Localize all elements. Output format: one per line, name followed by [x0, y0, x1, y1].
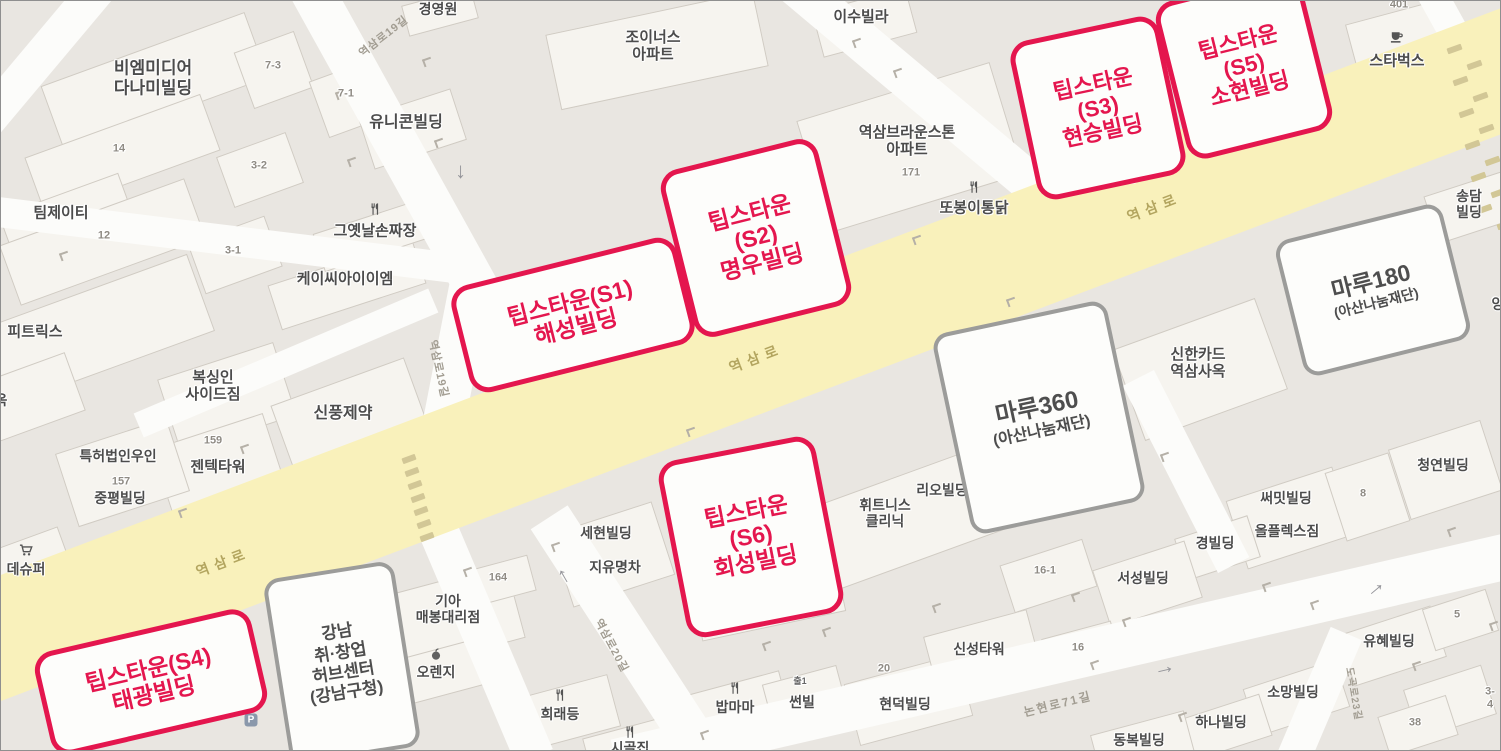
direction-arrow-icon: →	[1151, 654, 1177, 680]
building-label: 이수빌라	[833, 8, 888, 25]
lot-number: 159	[204, 435, 222, 448]
building-label: 시골집	[611, 740, 650, 751]
building-label: 팀제이티	[33, 204, 88, 221]
building-label: 중평빌딩	[94, 490, 146, 506]
lot-number: 20	[878, 663, 890, 676]
coffee-icon	[1390, 31, 1404, 44]
building-label: 출1	[793, 676, 806, 686]
building-label: 경영원	[419, 1, 458, 17]
callout-gangnam-hub: 강남취·창업허브센터(강남구청)	[262, 560, 422, 751]
building-label: 희래등	[541, 706, 580, 722]
restaurant-icon	[729, 682, 742, 695]
lot-number: 3-2	[251, 160, 267, 173]
restaurant-icon	[624, 726, 637, 739]
callout-tips-s2-text: 팁스타운 (S2) 명우빌딩	[706, 191, 806, 285]
building-label: 비엠미디어 다나미빌딩	[114, 58, 192, 97]
lot-number: 3-1	[225, 245, 241, 258]
building-label: 리오빌딩	[916, 482, 968, 498]
lot-number: 164	[489, 572, 507, 585]
lot-number: 7-1	[338, 88, 354, 101]
building-label: 피트릭스	[7, 323, 62, 340]
building-label: 오렌지	[417, 664, 456, 680]
orange-icon	[430, 648, 443, 661]
crosswalk-stripe	[1484, 156, 1500, 167]
building-label: 경빌딩	[1196, 535, 1235, 551]
callout-tips-s6-text: 팁스타운 (S6) 회성빌딩	[702, 492, 800, 583]
restaurant-icon	[369, 203, 382, 216]
direction-arrow-icon: →	[453, 161, 475, 183]
callout-tips-s6: 팁스타운 (S6) 회성빌딩	[655, 433, 846, 640]
callout-tips-s1-text: 팁스타운(S1) 해성빌딩	[505, 275, 642, 355]
restaurant-icon	[554, 689, 567, 702]
building-label: 복싱인 사이드짐	[185, 369, 240, 404]
entrance-mark	[1447, 527, 1458, 538]
building-label: 신성타워	[953, 641, 1005, 657]
lot-number: 7-3	[265, 60, 281, 73]
building-label: 케이씨아이이엠	[297, 270, 394, 287]
lot-number: 16-1	[1034, 565, 1056, 578]
lot-number: 8	[1360, 488, 1366, 501]
building-label: 지유명차	[589, 559, 641, 575]
building-label: 데슈퍼	[7, 561, 46, 577]
building-label: 하나빌딩	[1195, 714, 1247, 730]
building-label: 특허법인우인	[79, 448, 156, 464]
building-label: 젠텍타워	[190, 458, 245, 475]
map-canvas: 역삼로역삼로역삼로역삼로19길역삼로19길역삼로20길논현로71길도곡로23길비…	[0, 0, 1501, 751]
building-label: 옥	[0, 392, 7, 408]
callout-tips-s5-text: 팁스타운 (S5) 소현빌딩	[1196, 21, 1292, 111]
lot-number: 5	[1454, 609, 1460, 622]
building-label: 세현빌딩	[580, 525, 632, 541]
road-label: 역삼로19길	[357, 14, 411, 60]
building-label: 신한카드 역삼사옥	[1170, 346, 1225, 381]
entrance-mark	[762, 641, 773, 652]
building-label: 신풍제약	[314, 405, 373, 423]
building-label: 양	[1492, 296, 1501, 312]
building-label: 소망빌딩	[1267, 684, 1319, 700]
building-label: 스타벅스	[1369, 52, 1424, 69]
restaurant-icon	[968, 181, 981, 194]
lot-number: 401	[1390, 0, 1408, 11]
entrance-mark	[422, 57, 433, 68]
cart-icon	[19, 544, 33, 557]
lot-number: 16	[1072, 642, 1084, 655]
building-label: 서성빌딩	[1117, 570, 1169, 586]
entrance-mark	[347, 157, 358, 168]
building-label: 현덕빌딩	[879, 696, 931, 712]
callout-tips-s3-text: 팁스타운 (S3) 현승빌딩	[1051, 64, 1145, 152]
callout-tips-s4-text: 팁스타운(S4) 태광빌딩	[83, 643, 219, 721]
entrance-mark	[822, 627, 833, 638]
lot-number: 171	[902, 167, 920, 180]
lot-number: 3-4	[1485, 685, 1495, 710]
building-label: 청연빌딩	[1417, 457, 1469, 473]
entrance-mark	[932, 603, 943, 614]
entrance-mark	[1071, 592, 1082, 603]
building-label: 역삼브라운스톤 아파트	[859, 124, 956, 159]
building-label: 기아 매봉대리점	[416, 593, 480, 625]
building-label: 송담빌딩	[1454, 188, 1485, 220]
callout-maru180: 마루180(아산나눔재단)	[1273, 201, 1474, 378]
parking-icon: P	[245, 714, 258, 727]
building-label: 올플렉스짐	[1255, 523, 1319, 539]
building-label: 조이너스 아파트	[625, 29, 680, 64]
lot-number: 38	[1409, 717, 1421, 730]
road-label: 논현로71길	[1023, 690, 1094, 720]
building-label: 써밋빌딩	[1260, 490, 1312, 506]
building-label: 휘트니스 클리닉	[859, 497, 911, 529]
lot-number: 12	[98, 230, 110, 243]
building-label: 그옛날손짜장	[334, 222, 417, 239]
building-label: 유니콘빌딩	[369, 114, 443, 132]
building-label: 밥마마	[716, 699, 755, 715]
building-label: 동복빌딩	[1113, 732, 1165, 748]
building-label: 유혜빌딩	[1363, 633, 1415, 649]
lot-number: 14	[113, 143, 125, 156]
lot-number: 157	[112, 476, 130, 489]
building-label: 썬빌	[789, 694, 815, 710]
building-label: 또봉이통닭	[939, 199, 1008, 216]
